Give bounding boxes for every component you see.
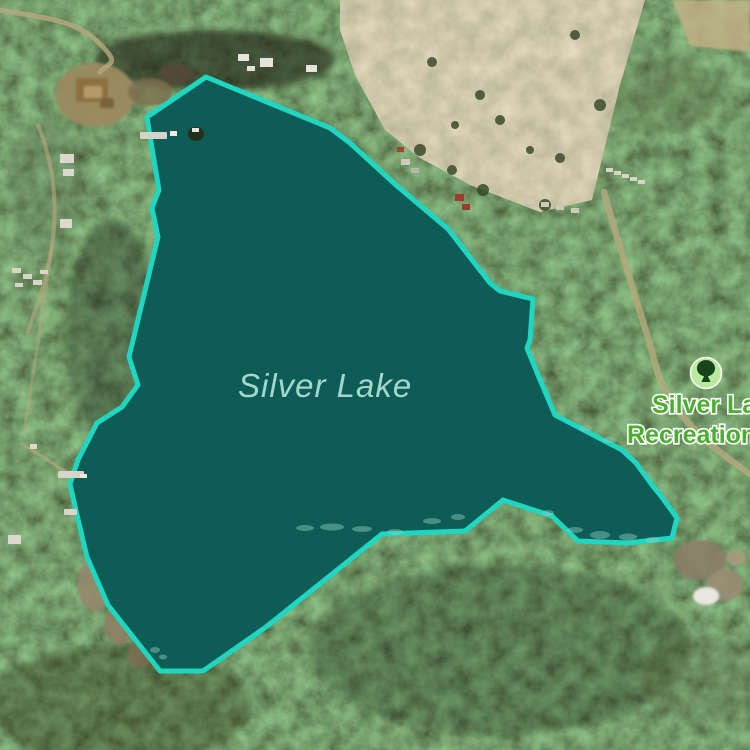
west-dock-boat xyxy=(80,474,87,478)
map-canvas[interactable]: Silver Lake Silver Lake Recreation Site xyxy=(0,0,750,750)
satellite-map-view[interactable]: Silver Lake Silver Lake Recreation Site xyxy=(0,0,750,750)
lake-name-label: Silver Lake xyxy=(238,367,412,404)
north-dock xyxy=(140,132,167,139)
poi-label-line1[interactable]: Silver Lake xyxy=(652,391,750,419)
dock-boat xyxy=(170,131,177,136)
poi-label-line2[interactable]: Recreation Site xyxy=(627,421,750,449)
clearing-cabins xyxy=(55,63,135,127)
island-boat xyxy=(192,128,199,132)
west-dock-small xyxy=(64,509,77,515)
